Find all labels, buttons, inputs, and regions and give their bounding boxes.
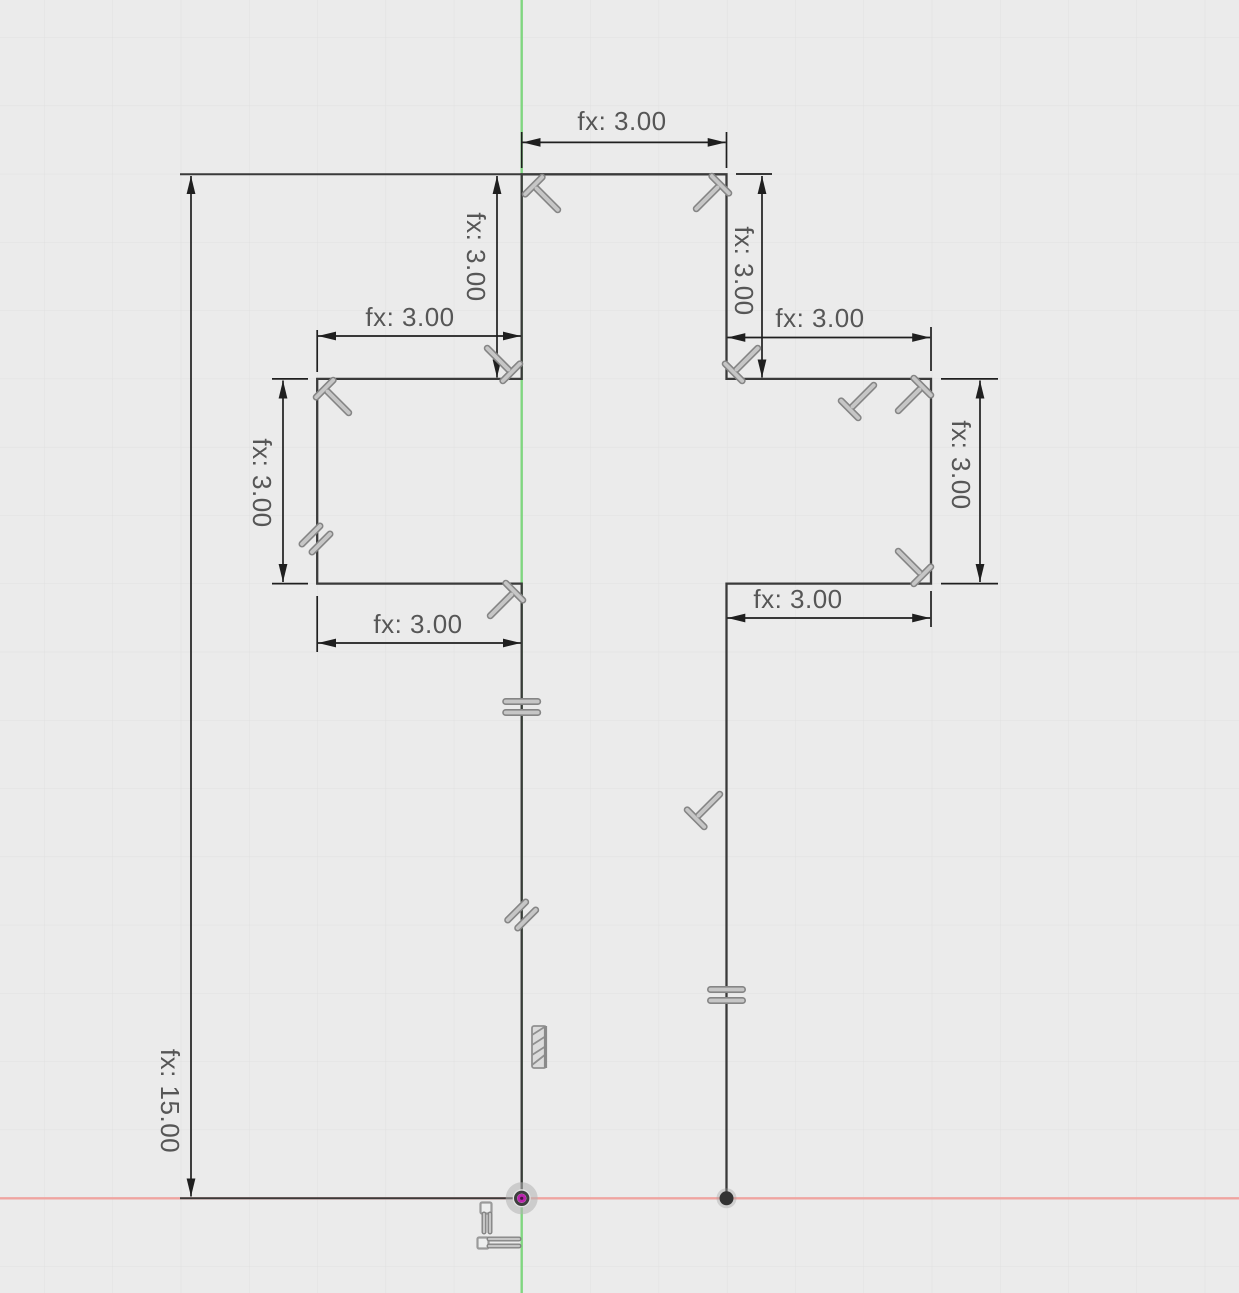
dimension-label-left-arm-bottom-width[interactable]: fx: 3.00 — [373, 609, 462, 639]
dimension-label-right-arm-top-width[interactable]: fx: 3.00 — [775, 303, 864, 333]
dimension-label-right-arm-height[interactable]: fx: 3.00 — [946, 420, 976, 509]
origin-point[interactable] — [506, 1182, 538, 1214]
dimension-label-upper-left-height[interactable]: fx: 3.00 — [461, 212, 491, 301]
sketch-canvas: fx: 3.00 fx: 3.00 fx: 3.00 fx: 3.00 fx: … — [0, 0, 1239, 1293]
dimension-label-left-arm-height[interactable]: fx: 3.00 — [247, 438, 277, 527]
dimension-label-left-arm-top-width[interactable]: fx: 3.00 — [365, 302, 454, 332]
dimension-label-total-height[interactable]: fx: 15.00 — [155, 1049, 185, 1153]
dimension-label-top-width[interactable]: fx: 3.00 — [577, 106, 666, 136]
dimension-label-right-arm-bottom-width[interactable]: fx: 3.00 — [753, 584, 842, 614]
vertex-point[interactable] — [717, 1188, 737, 1208]
fix-constraint-icon[interactable] — [532, 1026, 546, 1068]
dimension-label-upper-right-height[interactable]: fx: 3.00 — [729, 226, 759, 315]
